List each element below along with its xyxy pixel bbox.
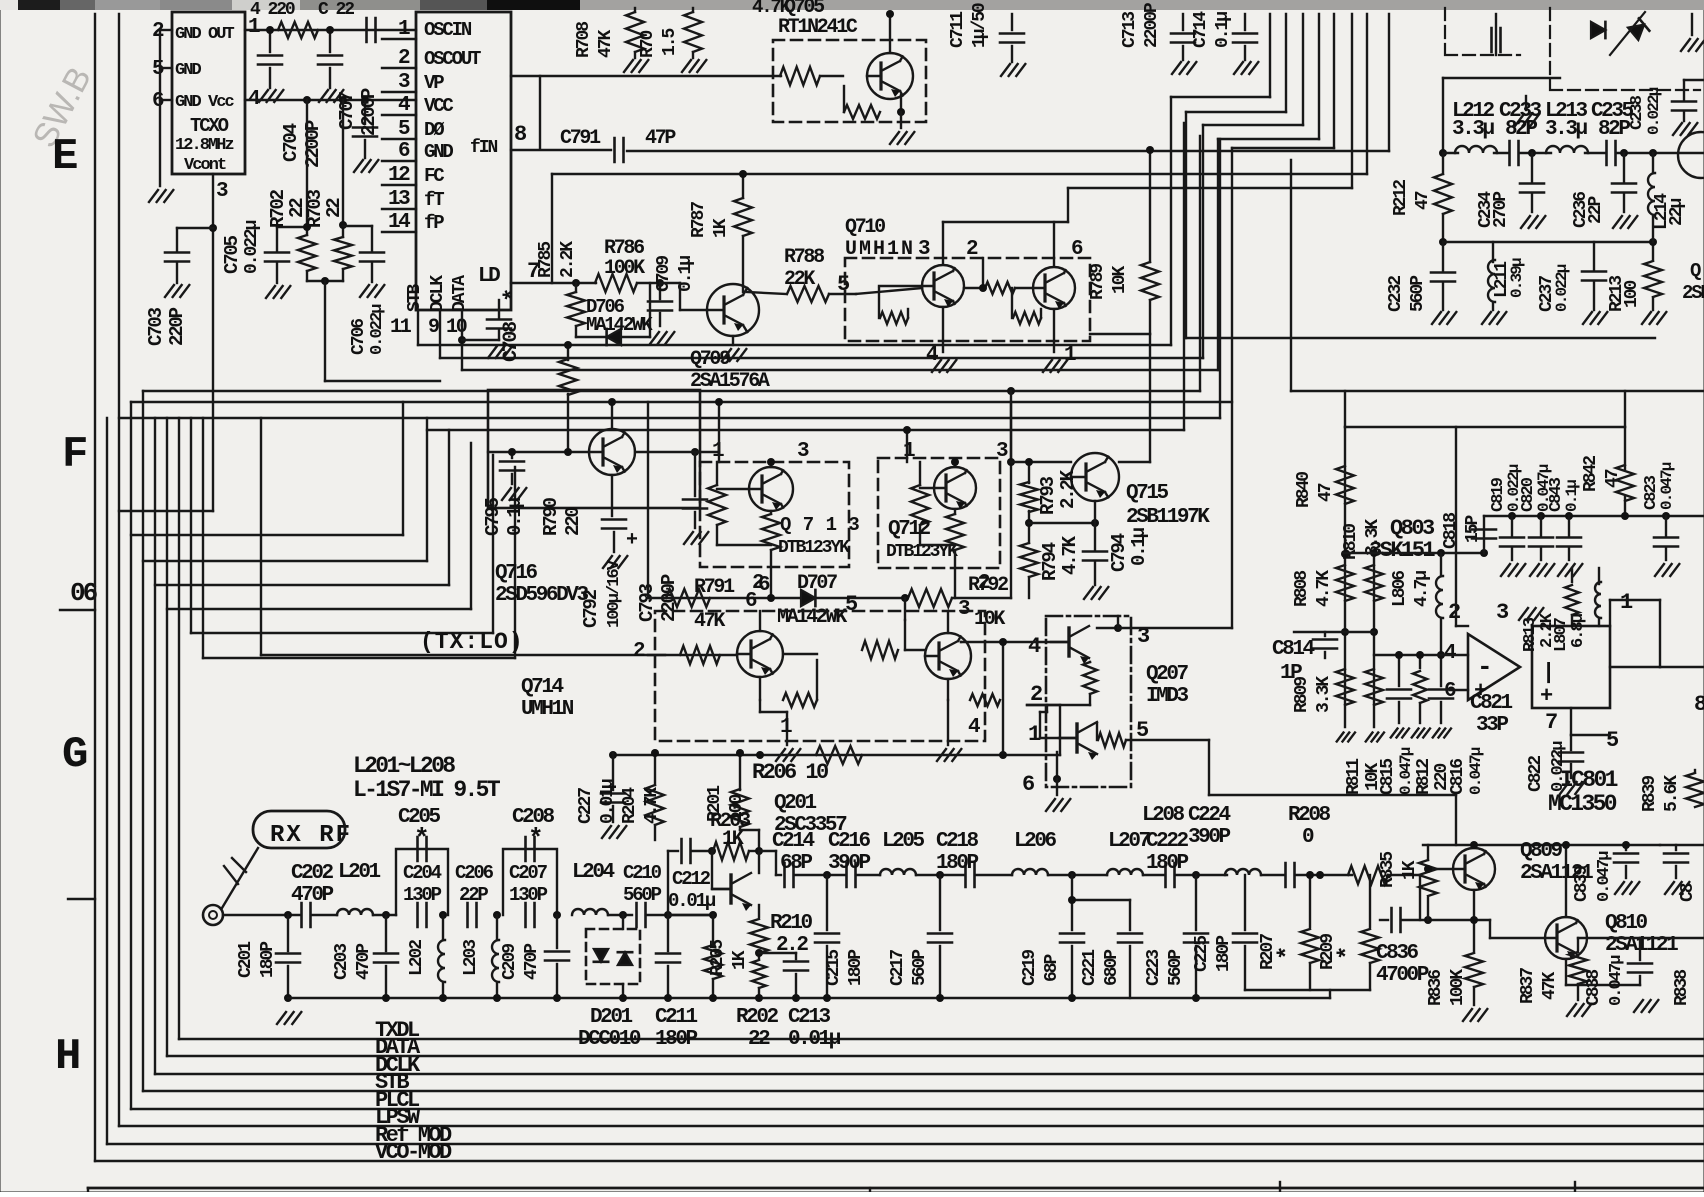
- svg-text:180P: 180P: [846, 949, 866, 986]
- svg-text:R205: R205: [708, 940, 728, 976]
- svg-text:C795: C795: [482, 497, 504, 536]
- svg-text:GND OUT: GND OUT: [175, 25, 234, 44]
- svg-text:R842: R842: [1581, 456, 1601, 492]
- svg-text:220: 220: [1432, 764, 1452, 791]
- svg-text:0.39µ: 0.39µ: [1508, 258, 1526, 298]
- svg-text:R206 10: R206 10: [752, 760, 828, 785]
- svg-text:H: H: [55, 1032, 79, 1082]
- svg-text:0.022µ: 0.022µ: [242, 220, 262, 274]
- svg-text:L203: L203: [461, 940, 481, 976]
- svg-text:220P: 220P: [166, 307, 188, 346]
- svg-text:Q716: Q716: [495, 562, 538, 585]
- svg-text:C794: C794: [1108, 533, 1130, 572]
- svg-text:3.3µ: 3.3µ: [1452, 118, 1495, 141]
- svg-text:C713: C713: [1120, 12, 1140, 48]
- svg-text:GND: GND: [175, 61, 201, 80]
- svg-text:13: 13: [388, 188, 410, 211]
- svg-text:0.1µ: 0.1µ: [1128, 527, 1150, 566]
- svg-text:47K: 47K: [596, 30, 616, 58]
- svg-text:9: 9: [428, 316, 439, 339]
- svg-text:*: *: [528, 824, 541, 854]
- svg-text:(TX:LO): (TX:LO): [420, 629, 524, 655]
- svg-text:68P: 68P: [1042, 954, 1062, 982]
- svg-text:560P: 560P: [910, 949, 930, 986]
- svg-text:RX RF: RX RF: [270, 822, 352, 849]
- svg-text:DATA: DATA: [450, 275, 470, 312]
- svg-text:C838: C838: [1584, 970, 1604, 1006]
- svg-text:12.8MHz: 12.8MHz: [175, 136, 233, 155]
- svg-text:C203: C203: [332, 944, 352, 980]
- svg-text:L206: L206: [1014, 830, 1057, 853]
- svg-text:10: 10: [446, 316, 467, 339]
- svg-text:4.7K: 4.7K: [642, 787, 662, 824]
- svg-text:OSCOUT: OSCOUT: [424, 48, 481, 70]
- svg-text:2200P: 2200P: [302, 120, 324, 168]
- svg-text:2SA1576A: 2SA1576A: [690, 370, 770, 393]
- svg-text:C209: C209: [500, 944, 520, 980]
- svg-text:2.2K: 2.2K: [1057, 469, 1079, 509]
- svg-text:C206: C206: [455, 862, 494, 884]
- svg-text:VCO-MOD: VCO-MOD: [375, 1140, 452, 1165]
- svg-text:C202: C202: [291, 862, 334, 885]
- svg-text:R812: R812: [1414, 759, 1434, 795]
- svg-text:12: 12: [388, 164, 410, 187]
- svg-text:33P: 33P: [1476, 714, 1508, 737]
- svg-text:C704: C704: [280, 123, 302, 162]
- svg-text:C224: C224: [1188, 804, 1231, 827]
- svg-text:R790: R790: [540, 497, 562, 536]
- svg-text:R202: R202: [736, 1006, 779, 1029]
- svg-text:R836: R836: [1426, 970, 1446, 1006]
- svg-text:1K: 1K: [730, 950, 750, 970]
- svg-text:Q810: Q810: [1605, 912, 1648, 935]
- svg-text:3SK151: 3SK151: [1369, 538, 1435, 563]
- svg-text:R808: R808: [1292, 571, 1312, 607]
- svg-text:GND: GND: [424, 141, 453, 163]
- svg-text:MA142WK: MA142WK: [586, 314, 653, 336]
- svg-text:22P: 22P: [1586, 196, 1606, 224]
- svg-text:2.2K: 2.2K: [558, 241, 578, 278]
- svg-text:470P: 470P: [291, 884, 334, 907]
- svg-text:C225: C225: [1192, 936, 1212, 972]
- svg-text:06: 06: [70, 578, 98, 608]
- svg-text:C8: C8: [1678, 883, 1698, 902]
- svg-text:DCC010: DCC010: [578, 1028, 641, 1051]
- svg-text:22P: 22P: [459, 884, 488, 906]
- svg-text:11: 11: [390, 316, 412, 339]
- svg-text:R788: R788: [784, 246, 824, 269]
- svg-text:G: G: [62, 730, 87, 780]
- svg-text:180P: 180P: [1214, 935, 1234, 972]
- svg-text:fIN: fIN: [470, 138, 497, 158]
- svg-text:R792: R792: [968, 574, 1008, 597]
- svg-text:R838: R838: [1672, 970, 1692, 1006]
- svg-text:D707: D707: [797, 572, 837, 595]
- svg-text:Q207: Q207: [1146, 663, 1189, 686]
- svg-text:R811: R811: [1344, 758, 1364, 795]
- svg-text:*: *: [1335, 948, 1362, 960]
- svg-text:L204: L204: [572, 861, 615, 884]
- svg-text:2: 2: [1448, 600, 1460, 625]
- svg-text:0.01µ: 0.01µ: [788, 1028, 841, 1051]
- svg-text:IMD3: IMD3: [1146, 685, 1189, 708]
- svg-text:L201~L208: L201~L208: [353, 753, 455, 779]
- svg-text:R785: R785: [536, 242, 556, 278]
- svg-text:C818: C818: [1441, 513, 1461, 549]
- svg-text:4.7K: 4.7K: [1059, 535, 1081, 575]
- svg-text:L208: L208: [1142, 804, 1185, 827]
- svg-text:180P: 180P: [936, 852, 979, 875]
- svg-text:C707: C707: [336, 91, 358, 130]
- svg-text:C223: C223: [1144, 950, 1164, 986]
- svg-text:1K: 1K: [1400, 860, 1420, 880]
- svg-text:C714: C714: [1191, 11, 1211, 48]
- svg-text:14: 14: [388, 211, 410, 234]
- svg-text:Q714: Q714: [521, 676, 564, 699]
- svg-text:C814: C814: [1272, 638, 1315, 661]
- svg-text:C711: C711: [948, 11, 968, 48]
- svg-text:C708: C708: [500, 322, 523, 362]
- svg-text:Q 7 1 3: Q 7 1 3: [780, 514, 860, 536]
- svg-text:R791: R791: [694, 576, 735, 599]
- svg-text:C201: C201: [236, 941, 256, 978]
- svg-text:390P: 390P: [1188, 826, 1231, 849]
- svg-text:C836: C836: [1376, 942, 1419, 965]
- svg-text:R840: R840: [1294, 472, 1314, 508]
- svg-text:C792: C792: [580, 589, 602, 628]
- svg-text:4 220: 4 220: [250, 0, 295, 20]
- svg-text:C227: C227: [576, 788, 596, 824]
- svg-text:DCLK: DCLK: [428, 275, 448, 312]
- svg-text:LD: LD: [478, 265, 500, 288]
- svg-text:L806: L806: [1390, 571, 1410, 607]
- svg-text:C222: C222: [1146, 830, 1189, 853]
- svg-text:4.7K: 4.7K: [1314, 570, 1334, 607]
- svg-text:560P: 560P: [1166, 949, 1186, 986]
- svg-text:560P: 560P: [1408, 275, 1428, 312]
- svg-text:4700P: 4700P: [1376, 964, 1429, 987]
- svg-text:390P: 390P: [828, 852, 871, 875]
- svg-text:100µ/16V: 100µ/16V: [605, 559, 624, 628]
- svg-text:270P: 270P: [1491, 191, 1511, 228]
- svg-text:C706: C706: [349, 319, 369, 355]
- svg-text:C215: C215: [824, 950, 844, 986]
- svg-text:2200P: 2200P: [358, 88, 380, 136]
- svg-text:180P: 180P: [258, 941, 278, 978]
- svg-text:220: 220: [562, 507, 584, 536]
- svg-text:0.022µ: 0.022µ: [1645, 87, 1663, 135]
- svg-text:2SB1197K: 2SB1197K: [1126, 506, 1210, 529]
- svg-text:22µ: 22µ: [1667, 199, 1687, 226]
- svg-text:68P: 68P: [780, 852, 812, 875]
- svg-text:STB: STB: [405, 284, 425, 312]
- svg-text:L-1S7-MI 9.5T: L-1S7-MI 9.5T: [353, 777, 501, 803]
- svg-text:22: 22: [323, 198, 345, 218]
- svg-text:C207: C207: [509, 862, 548, 884]
- svg-text:R835: R835: [1378, 852, 1398, 888]
- svg-text:1K: 1K: [711, 218, 731, 238]
- svg-text:7: 7: [1545, 710, 1557, 735]
- svg-text:Q809: Q809: [1520, 840, 1563, 863]
- svg-text:R787: R787: [689, 202, 709, 238]
- svg-text:3.3K: 3.3K: [1314, 676, 1334, 713]
- svg-text:RT1N241C: RT1N241C: [778, 16, 858, 39]
- svg-text:Q712: Q712: [888, 518, 931, 541]
- svg-text:VP: VP: [424, 72, 444, 94]
- svg-text:DØ: DØ: [424, 119, 444, 141]
- svg-text:6.8µ: 6.8µ: [1569, 613, 1588, 648]
- svg-text:*: *: [1275, 948, 1302, 960]
- svg-text:47: 47: [1316, 483, 1336, 502]
- svg-text:0.047µ: 0.047µ: [1467, 747, 1485, 795]
- svg-text:C218: C218: [936, 830, 979, 853]
- svg-text:L205: L205: [882, 830, 925, 853]
- svg-text:Vcont: Vcont: [184, 156, 226, 175]
- svg-text:UMH1N: UMH1N: [521, 698, 574, 721]
- svg-text:C219: C219: [1020, 950, 1040, 986]
- svg-text:130P: 130P: [403, 884, 442, 906]
- svg-text:C703: C703: [145, 307, 167, 346]
- svg-text:0.01µ: 0.01µ: [598, 779, 618, 824]
- svg-text:C705: C705: [221, 235, 243, 274]
- svg-text:OSCIN: OSCIN: [424, 19, 472, 41]
- svg-text:2SD596DV3: 2SD596DV3: [495, 584, 588, 607]
- svg-text:8: 8: [1694, 692, 1704, 717]
- svg-text:IC801: IC801: [1560, 767, 1618, 793]
- svg-text:560P: 560P: [623, 884, 662, 906]
- svg-text:R70: R70: [638, 31, 658, 58]
- svg-text:10K: 10K: [1110, 266, 1130, 294]
- svg-text:2: 2: [1030, 682, 1042, 707]
- svg-text:C216: C216: [828, 830, 871, 853]
- svg-text:C 22: C 22: [318, 0, 354, 20]
- svg-text:82P: 82P: [1505, 118, 1537, 141]
- svg-text:470P: 470P: [522, 943, 542, 980]
- svg-text:C210: C210: [623, 862, 662, 884]
- svg-text:C815: C815: [1378, 759, 1398, 795]
- svg-text:E: E: [52, 132, 77, 182]
- svg-text:82P: 82P: [1598, 118, 1630, 141]
- svg-text:F: F: [62, 430, 86, 480]
- svg-text:Q201: Q201: [774, 792, 817, 815]
- svg-text:0.047µ: 0.047µ: [1607, 955, 1626, 1006]
- svg-text:*: *: [501, 290, 528, 302]
- svg-text:D201: D201: [590, 1006, 633, 1029]
- svg-text:470P: 470P: [354, 943, 374, 980]
- svg-text:0.1µ: 0.1µ: [1213, 12, 1233, 48]
- svg-text:R708: R708: [574, 22, 594, 58]
- svg-text:0.047µ: 0.047µ: [1595, 851, 1614, 902]
- svg-text:C217: C217: [888, 950, 908, 986]
- svg-text:100K: 100K: [1448, 969, 1468, 1006]
- svg-text:L207: L207: [1108, 830, 1151, 853]
- svg-text:R839: R839: [1640, 776, 1660, 812]
- svg-text:Q715: Q715: [1126, 482, 1169, 505]
- svg-text:*: *: [414, 824, 427, 854]
- svg-text:R789: R789: [1088, 264, 1108, 300]
- svg-text:C232: C232: [1386, 276, 1406, 312]
- svg-text:GND Vcc: GND Vcc: [175, 93, 234, 112]
- svg-text:130P: 130P: [509, 884, 548, 906]
- svg-text:1P: 1P: [1280, 662, 1302, 685]
- svg-text:5.6K: 5.6K: [1662, 775, 1682, 812]
- svg-text:0.047µ: 0.047µ: [1658, 462, 1676, 510]
- svg-text:0.01µ: 0.01µ: [668, 890, 716, 912]
- svg-text:C709: C709: [654, 256, 674, 292]
- svg-text:47K: 47K: [1540, 972, 1560, 1000]
- svg-text:0.022µ: 0.022µ: [368, 304, 387, 355]
- svg-text:47K: 47K: [694, 610, 725, 633]
- svg-text:1.5: 1.5: [660, 29, 680, 56]
- svg-text:R212: R212: [1391, 180, 1411, 216]
- svg-text:Q710: Q710: [845, 216, 885, 239]
- svg-text:DTB123YK: DTB123YK: [778, 538, 850, 558]
- svg-text:MA142WK: MA142WK: [777, 606, 847, 629]
- svg-text:0.047µ: 0.047µ: [1397, 747, 1415, 795]
- svg-text:C213: C213: [788, 1006, 831, 1029]
- svg-text:|: |: [1542, 660, 1553, 685]
- svg-text:C204: C204: [403, 862, 442, 884]
- svg-text:6: 6: [1022, 772, 1034, 797]
- svg-text:R810: R810: [1341, 524, 1361, 560]
- svg-text:FC: FC: [424, 165, 444, 187]
- svg-text:R793: R793: [1037, 476, 1059, 515]
- svg-text:R794: R794: [1039, 542, 1061, 581]
- svg-text:100: 100: [1622, 281, 1642, 308]
- svg-text:47: 47: [1413, 191, 1433, 210]
- svg-text:3.3µ: 3.3µ: [1545, 118, 1588, 141]
- svg-text:180P: 180P: [1146, 852, 1189, 875]
- svg-text:47P: 47P: [645, 127, 676, 150]
- svg-text:MC1350: MC1350: [1548, 791, 1617, 817]
- svg-text:0.022µ: 0.022µ: [1549, 741, 1568, 792]
- svg-text:1µ/50: 1µ/50: [970, 3, 990, 48]
- svg-text:C221: C221: [1080, 949, 1100, 986]
- svg-text:1K: 1K: [722, 828, 744, 851]
- svg-text:2200P: 2200P: [1142, 2, 1162, 48]
- svg-text:C214: C214: [772, 830, 815, 853]
- svg-text:L202: L202: [407, 940, 427, 976]
- svg-text:L201: L201: [338, 861, 381, 884]
- svg-text:C821: C821: [1470, 692, 1513, 715]
- svg-text:C839: C839: [1572, 866, 1592, 902]
- svg-text:2SK: 2SK: [1682, 282, 1704, 304]
- svg-text:0.1µ: 0.1µ: [504, 497, 526, 536]
- svg-text:fT: fT: [424, 189, 444, 211]
- svg-text:22: 22: [748, 1028, 770, 1051]
- svg-text:C791: C791: [560, 127, 601, 150]
- svg-text:-: -: [1477, 652, 1490, 682]
- svg-text:0.022µ: 0.022µ: [1553, 264, 1571, 312]
- svg-text:R208: R208: [1288, 804, 1331, 827]
- svg-text:C212: C212: [672, 868, 711, 890]
- svg-text:R837: R837: [1518, 968, 1538, 1004]
- svg-text:4.7µ: 4.7µ: [1412, 571, 1432, 607]
- svg-text:R204: R204: [620, 787, 640, 824]
- svg-text:680P: 680P: [1102, 949, 1122, 986]
- svg-text:C211: C211: [655, 1006, 698, 1029]
- svg-text:VCC: VCC: [424, 95, 453, 117]
- svg-text:C822: C822: [1526, 756, 1546, 792]
- svg-text:180P: 180P: [655, 1028, 698, 1051]
- svg-text:0.1µ: 0.1µ: [1563, 480, 1581, 512]
- svg-text:TCXO: TCXO: [190, 115, 229, 137]
- svg-text:R210: R210: [770, 912, 813, 935]
- svg-text:fP: fP: [424, 212, 444, 234]
